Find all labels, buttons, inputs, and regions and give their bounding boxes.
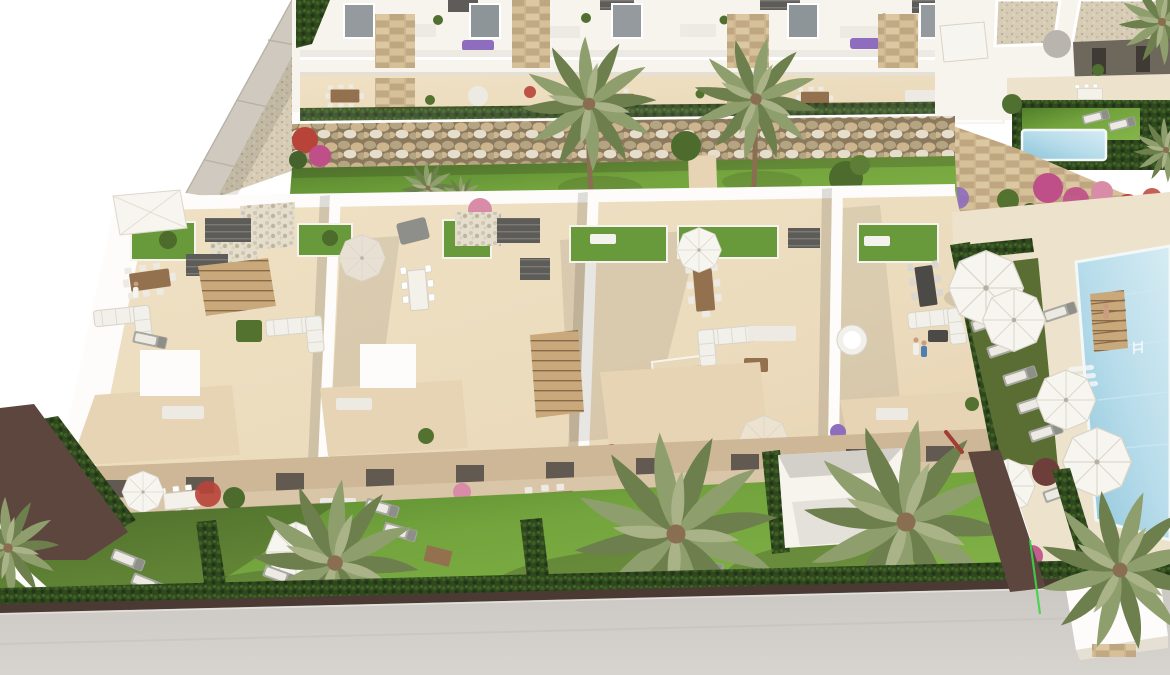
grey-parasol bbox=[1043, 30, 1071, 58]
person bbox=[133, 282, 139, 298]
terrace-volume bbox=[140, 350, 200, 396]
roof-lounger bbox=[590, 234, 616, 244]
side-table bbox=[928, 330, 948, 342]
lounge-chair bbox=[876, 408, 908, 420]
sofa bbox=[748, 326, 796, 341]
private-plunge-pool bbox=[1022, 130, 1106, 160]
pergola-box bbox=[788, 228, 820, 248]
stair-void bbox=[530, 330, 584, 418]
garden-tree bbox=[671, 131, 701, 161]
upper-apartment-terraces bbox=[292, 0, 1005, 130]
parasol bbox=[983, 289, 1046, 352]
square-parasol bbox=[940, 22, 988, 62]
sofa bbox=[336, 398, 372, 410]
pergola-box bbox=[520, 258, 550, 280]
lavender-planter bbox=[462, 40, 494, 51]
round-table bbox=[468, 86, 488, 106]
person bbox=[1103, 303, 1109, 319]
stone-accent-pier bbox=[878, 14, 918, 68]
flower-pot bbox=[524, 86, 536, 98]
potted-tree bbox=[223, 487, 245, 509]
roof-lounger bbox=[864, 236, 890, 246]
stair-void bbox=[198, 258, 276, 316]
sofa bbox=[905, 90, 939, 102]
parasol bbox=[1036, 370, 1096, 430]
stone-accent-pier bbox=[375, 14, 415, 68]
pergola-box bbox=[497, 218, 540, 243]
parasol bbox=[677, 228, 722, 273]
stone-accent-pier bbox=[512, 0, 550, 68]
lavender-planter bbox=[850, 38, 880, 49]
person bbox=[913, 337, 919, 355]
sofa bbox=[162, 406, 204, 419]
parasol bbox=[122, 471, 164, 513]
planter bbox=[236, 320, 262, 342]
parasol bbox=[339, 235, 386, 282]
terrace-volume bbox=[360, 344, 416, 388]
scene-svg bbox=[0, 0, 1170, 675]
architectural-render bbox=[0, 0, 1170, 675]
red-tree bbox=[195, 481, 221, 507]
pergola-box bbox=[205, 218, 251, 242]
person bbox=[921, 340, 927, 357]
